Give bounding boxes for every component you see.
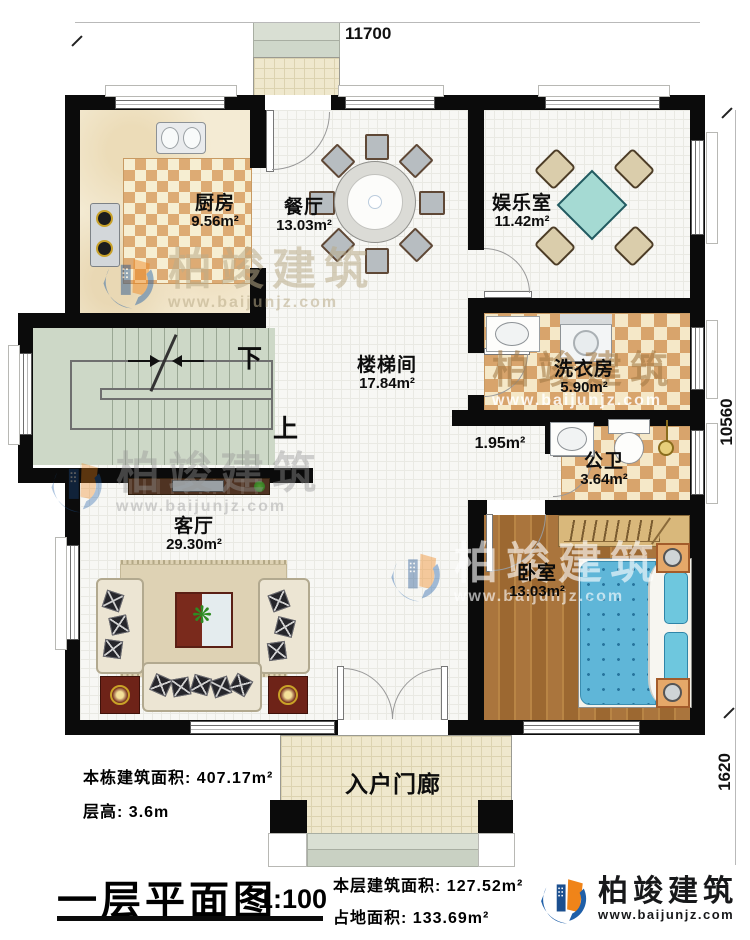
wall-kitchen-east [250,110,266,168]
dimension-tick [721,107,732,118]
top-porch-step [253,22,340,42]
floor-plan-canvas: ❋ 柏竣建筑 www.baijunjz.com 柏竣建筑 www.baijunj… [0,0,750,940]
porch-pillar [270,800,307,833]
stair-arrow-head [150,355,160,367]
window-stairs [19,353,32,435]
window-sill [538,85,670,97]
tv-set [172,480,224,492]
window-sill [55,537,67,650]
title-underline [57,916,323,921]
window-living-bottom [190,721,335,734]
room-label-dining: 餐厅 13.03m² [249,198,359,234]
floor-height-value: 3.6m [129,804,169,821]
dimension-height-main: 10560 [717,387,737,457]
dining-chair [365,134,389,160]
brand-block: 柏竣建筑 www.baijunjz.com [538,870,738,928]
sofa-pillow [108,614,129,635]
window-kitchen [115,96,225,109]
dimension-height-porch: 1620 [715,744,735,800]
footprint-label: 占地面积: [333,910,407,927]
floor-height-note: 层高: 3.6m [83,798,169,822]
floor-area-note: 本层建筑面积: 127.52m² [333,872,523,896]
footprint-note: 占地面积: 133.69m² [333,904,489,928]
kitchen-sink-basin [183,127,201,149]
sofa-pillow [103,639,123,659]
room-label-bathroom: 公卫 3.64m² [549,452,659,488]
room-label-porch: 入户门廊 [318,772,468,796]
dimension-width: 11700 [345,24,391,44]
stair-handrail [100,388,273,400]
opening-entry-door [338,720,448,735]
washing-machine-panel [560,314,612,325]
room-label-laundry: 洗衣房 5.90m² [529,360,639,396]
plant-small [254,481,265,492]
entry-porch-step [307,849,480,867]
opening-bedroom-door [487,500,545,515]
window-sill [105,85,237,97]
dimension-line-top [75,22,700,23]
wall-left-upper [65,95,80,320]
stair-label-down: 下 [230,346,270,372]
porch-pillar [478,800,513,833]
corner-table-lamp [110,685,130,705]
stove-burner [96,210,113,227]
opening-top-porch-door [265,95,331,110]
entry-door-leaf-right [441,666,448,720]
brand-logo-icon [538,870,590,928]
window-entertainment [545,96,660,109]
footprint-value: 133.69m² [413,910,490,927]
stove-burner [96,240,113,257]
floor-height-label: 层高: [83,804,123,821]
room-label-stairwell: 楼梯间 17.84m² [332,356,442,392]
dimension-tick [723,707,734,718]
window-sill [338,85,444,97]
wall-entertainment-south [468,298,705,313]
plan-scale: 1:100 [258,884,327,915]
wall-bedroom-west [468,500,484,720]
bed-pillow [664,632,688,684]
building-area-label: 本栋建筑面积: [83,770,191,787]
window-sill [8,345,20,445]
corner-table-lamp [278,685,298,705]
dimension-tick [71,35,82,46]
washing-machine-drum [573,330,599,356]
building-area-value: 407.17m² [197,770,274,787]
stair-label-up: 上 [266,416,306,442]
dining-chair [419,191,445,215]
dining-table-center [368,195,382,209]
window-entertainment-right [691,140,704,235]
sofa-pillow [171,677,192,698]
sofa-pillow [267,641,287,661]
dining-chair [365,248,389,274]
laundry-sink-basin [495,322,529,346]
room-label-living: 客厅 29.30m² [139,517,249,553]
window-bath-right [691,430,704,495]
nightstand-lamp [663,683,682,702]
window-laundry-right [691,327,704,390]
floor-area-label: 本层建筑面积: [333,878,441,895]
kitchen-sink-basin [161,127,179,149]
floor-area-value: 127.52m² [447,878,524,895]
entry-porch-pad [268,833,307,867]
dimension-line-right [735,110,736,865]
window-living-left [66,545,79,640]
nightstand-lamp [663,548,682,567]
room-label-hallway: 1.95m² [452,436,548,453]
wardrobe-hangers [564,520,660,542]
bath-sink-basin [557,427,587,451]
wall-kitchen-south [18,313,266,328]
room-label-entertainment: 娱乐室 11.42m² [467,194,577,230]
window-sill [706,132,718,244]
wall-laundry-west [468,298,484,353]
wall-kitchen-east [250,268,266,328]
entry-porch-pad [478,833,515,867]
brand-website: www.baijunjz.com [598,907,738,922]
stair-arrow-head [172,355,182,367]
window-bedroom-bottom [523,721,640,734]
coffee-table-plant: ❋ [190,604,214,628]
window-dining [345,96,435,109]
room-label-bedroom: 卧室 13.03m² [482,564,592,600]
bed-pillow [664,572,688,624]
building-area-note: 本栋建筑面积: 407.17m² [83,764,273,788]
shower-head [658,440,674,456]
brand-name: 柏竣建筑 [598,877,738,907]
